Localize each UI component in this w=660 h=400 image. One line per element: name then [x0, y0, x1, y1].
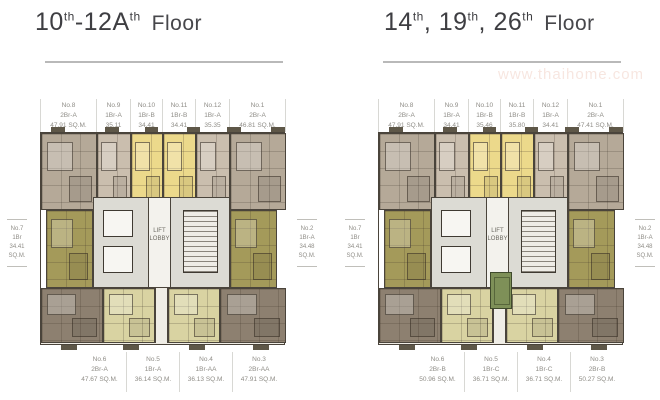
- top-unit-labels: No.8 2Br-A 47.91 SQ.M. No.9 1Br-A 35.11 …: [40, 99, 286, 132]
- service-core: LIFT LOBBY: [93, 197, 230, 288]
- floor-plan-sheet: 10th-12AthFloor No.8 2Br-A 47.91 SQ.M. N…: [0, 0, 660, 400]
- unit-label: No.8 2Br-A 47.91 SQ.M.: [379, 99, 435, 132]
- south-corridor: [155, 288, 168, 343]
- unit-type: 2Br-A: [568, 111, 623, 121]
- lift-lobby-label: LIFT LOBBY: [147, 228, 173, 243]
- unit-no: No.11: [501, 101, 533, 111]
- unit-1br-south-right: [506, 288, 558, 343]
- unit-no: No.2: [292, 225, 322, 234]
- middle-band: LIFT LOBBY: [41, 210, 284, 288]
- unit-type: 2Br-A: [73, 365, 126, 375]
- dimension-tick: [7, 219, 27, 220]
- bottom-unit-labels: No.6 2Br-B 50.96 SQ.M. No.5 1Br-C 36.71 …: [411, 352, 623, 392]
- unit-2br-south-left: [41, 288, 103, 343]
- unit-no: No.6: [73, 355, 126, 365]
- unit-label: No.12 1Br-A 35.35 SQ.M.: [196, 99, 230, 132]
- title-part: , 26: [479, 8, 523, 36]
- balcony: [105, 127, 119, 132]
- unit-area: 36.13 SQ.M.: [180, 375, 232, 385]
- unit-label: No.12 1Br-A 34.41 SQ.M.: [534, 99, 568, 132]
- unit-area: 47.67 SQ.M.: [73, 375, 126, 385]
- unit-no: No.12: [196, 101, 229, 111]
- unit-label: No.3 2Br-B 50.27 SQ.M.: [570, 352, 623, 392]
- unit-1br-south-right: [168, 288, 220, 343]
- unit-no: No.12: [534, 101, 567, 111]
- balcony: [227, 127, 241, 132]
- unit-no: No.1: [230, 101, 285, 111]
- title-sup: th: [413, 10, 424, 24]
- dimension-tick: [635, 266, 655, 267]
- balcony: [525, 127, 538, 132]
- dimension-tick: [345, 219, 365, 220]
- floor-plan-drawing: LIFT LOBBY: [40, 132, 285, 345]
- unit-1br-west: [384, 210, 431, 288]
- watermark-text: www.thaihome.com: [498, 66, 660, 83]
- unit-no: No.3: [571, 355, 623, 365]
- title-part: 10: [35, 8, 64, 36]
- unit-label: No.4 1Br-AA 36.13 SQ.M.: [179, 352, 232, 392]
- unit-label: No.6 2Br-B 50.96 SQ.M.: [411, 352, 464, 392]
- unit-type: 1Br-A: [97, 111, 130, 121]
- lift-label: LIFT: [147, 228, 173, 236]
- balcony: [187, 127, 200, 132]
- lift-label: LIFT: [485, 228, 511, 236]
- unit-no: No.8: [41, 101, 96, 111]
- unit-no: No.11: [163, 101, 195, 111]
- unit-type: 1Br-A: [630, 234, 660, 243]
- unit-type: 1Br-C: [465, 365, 517, 375]
- unit-2br-south-left: [379, 288, 441, 343]
- unit-no: No.5: [127, 355, 179, 365]
- unit-type: 1Br-AA: [180, 365, 232, 375]
- unit-no: No.4: [180, 355, 232, 365]
- balcony: [51, 127, 65, 132]
- unit-no: No.5: [465, 355, 517, 365]
- lobby-label: LOBBY: [485, 236, 511, 244]
- dimension-tick: [635, 219, 655, 220]
- balcony: [123, 345, 139, 350]
- unit-1br-south-left: [441, 288, 493, 343]
- unit-no: No.2: [630, 225, 660, 234]
- lobby-label: LOBBY: [147, 236, 173, 244]
- unit-area: 35.35 SQ.M.: [196, 121, 229, 132]
- unit-1br-south-left: [103, 288, 155, 343]
- unit-area: 47.91 SQ.M.: [233, 375, 285, 385]
- unit-type: 1Br-B: [469, 111, 500, 121]
- balcony: [565, 127, 579, 132]
- unit-no: No.8: [379, 101, 434, 111]
- unit-type: 1Br-B: [163, 111, 195, 121]
- lift-lobby-label: LIFT LOBBY: [485, 228, 511, 243]
- lift-shaft: [441, 210, 471, 237]
- east-unit-label: No.2 1Br-A 34.48 SQ.M.: [292, 214, 322, 272]
- unit-type: 1Br: [2, 234, 32, 243]
- unit-area: 34.41 SQ.M.: [534, 121, 567, 132]
- unit-2br-south-right: [220, 288, 286, 343]
- unit-label: No.3 2Br-AA 47.91 SQ.M.: [232, 352, 285, 392]
- balcony: [61, 345, 77, 350]
- title-underline: [45, 61, 283, 63]
- west-unit-label: No.7 1Br 34.41 SQ.M.: [340, 214, 370, 272]
- unit-type: 1Br-A: [196, 111, 229, 121]
- title-sup: th: [522, 10, 533, 24]
- unit-no: No.9: [435, 101, 468, 111]
- unit-no: No.10: [131, 101, 162, 111]
- lift-shaft: [441, 246, 471, 273]
- unit-area: 50.27 SQ.M.: [571, 375, 623, 385]
- unit-2br-corner-left: [379, 133, 435, 210]
- unit-area: 34.48 SQ.M.: [292, 243, 322, 261]
- unit-label: No.6 2Br-A 47.67 SQ.M.: [73, 352, 126, 392]
- unit-no: No.10: [469, 101, 500, 111]
- unit-2br-corner-right: [230, 133, 286, 210]
- unit-no: No.4: [518, 355, 570, 365]
- west-unit-label: No.7 1Br 34.41 SQ.M.: [2, 214, 32, 272]
- unit-type: 1Br-A: [435, 111, 468, 121]
- unit-label: No.5 1Br-C 36.71 SQ.M.: [464, 352, 517, 392]
- title-part: , 19: [424, 8, 468, 36]
- unit-label: No.8 2Br-A 47.91 SQ.M.: [41, 99, 97, 132]
- bottom-unit-row: [41, 288, 284, 343]
- unit-type: 2Br-B: [571, 365, 623, 375]
- balcony: [461, 345, 477, 350]
- balcony: [483, 127, 496, 132]
- unit-label: No.5 1Br-A 36.14 SQ.M.: [126, 352, 179, 392]
- unit-type: 1Br: [340, 234, 370, 243]
- unit-area: 36.71 SQ.M.: [518, 375, 570, 385]
- unit-type: 1Br-A: [127, 365, 179, 375]
- title-sup: th: [130, 10, 141, 24]
- stair-core: [521, 210, 556, 272]
- balcony: [189, 345, 205, 350]
- unit-no: No.9: [97, 101, 130, 111]
- top-unit-labels: No.8 2Br-A 47.91 SQ.M. No.9 1Br-A 34.41 …: [378, 99, 624, 132]
- setback: [615, 210, 624, 288]
- dimension-tick: [297, 266, 317, 267]
- stair-core: [183, 210, 218, 272]
- balcony: [145, 127, 158, 132]
- unit-no: No.7: [340, 225, 370, 234]
- floor-plan-panel-left: 10th-12AthFloor No.8 2Br-A 47.91 SQ.M. N…: [0, 0, 330, 400]
- unit-no: No.7: [2, 225, 32, 234]
- title-part: -12A: [75, 8, 130, 36]
- unit-area: 34.41 SQ.M.: [2, 243, 32, 261]
- unit-type: 1Br-B: [501, 111, 533, 121]
- unit-label: No.4 1Br-C 36.71 SQ.M.: [517, 352, 570, 392]
- unit-no: No.1: [568, 101, 623, 111]
- unit-area: 47.91 SQ.M.: [379, 121, 434, 131]
- page-title: 10th-12AthFloor: [35, 8, 202, 37]
- east-unit-label: No.2 1Br-A 34.48 SQ.M.: [630, 214, 660, 272]
- title-sup: th: [64, 10, 75, 24]
- unit-type: 1Br-A: [534, 111, 567, 121]
- unit-area: 36.71 SQ.M.: [465, 375, 517, 385]
- title-floor-word: Floor: [544, 12, 594, 35]
- unit-no: No.3: [233, 355, 285, 365]
- title-underline: [383, 61, 621, 63]
- unit-area: 34.41 SQ.M.: [340, 243, 370, 261]
- balcony: [271, 127, 285, 132]
- garden-unit-marker: [490, 272, 512, 309]
- balcony: [399, 345, 415, 350]
- floor-plan-panel-right: 14th, 19th, 26thFloor No.8 2Br-A 47.91 S…: [338, 0, 660, 400]
- unit-type: 2Br-A: [41, 111, 96, 121]
- lift-shaft: [103, 246, 133, 273]
- setback: [277, 210, 286, 288]
- unit-2br-corner-left: [41, 133, 97, 210]
- dimension-tick: [297, 219, 317, 220]
- unit-type: 1Br-B: [131, 111, 162, 121]
- unit-2br-corner-right: [568, 133, 624, 210]
- dimension-tick: [7, 266, 27, 267]
- unit-area: 47.91 SQ.M.: [41, 121, 96, 131]
- balcony: [609, 127, 623, 132]
- balcony: [443, 127, 457, 132]
- unit-1br-east: [568, 210, 615, 288]
- unit-area: 50.96 SQ.M.: [411, 375, 464, 385]
- unit-1br-east: [230, 210, 277, 288]
- balcony: [389, 127, 403, 132]
- unit-type: 2Br-A: [379, 111, 434, 121]
- unit-type: 2Br-B: [411, 365, 464, 375]
- unit-1br-west: [46, 210, 93, 288]
- dimension-tick: [345, 266, 365, 267]
- unit-area: 34.48 SQ.M.: [630, 243, 660, 261]
- unit-type: 2Br-A: [230, 111, 285, 121]
- page-title: 14th, 19th, 26thFloor: [384, 8, 595, 37]
- floor-plan-drawing: LIFT LOBBY: [378, 132, 623, 345]
- title-sup: th: [468, 10, 479, 24]
- balcony: [253, 345, 269, 350]
- unit-no: No.6: [411, 355, 464, 365]
- unit-type: 2Br-AA: [233, 365, 285, 375]
- unit-2br-south-right: [558, 288, 624, 343]
- lift-shaft: [103, 210, 133, 237]
- title-part: 14: [384, 8, 413, 36]
- title-floor-word: Floor: [152, 12, 202, 35]
- unit-area: 36.14 SQ.M.: [127, 375, 179, 385]
- balcony: [591, 345, 607, 350]
- unit-type: 1Br-A: [292, 234, 322, 243]
- bottom-unit-labels: No.6 2Br-A 47.67 SQ.M. No.5 1Br-A 36.14 …: [73, 352, 285, 392]
- unit-type: 1Br-C: [518, 365, 570, 375]
- balcony: [527, 345, 543, 350]
